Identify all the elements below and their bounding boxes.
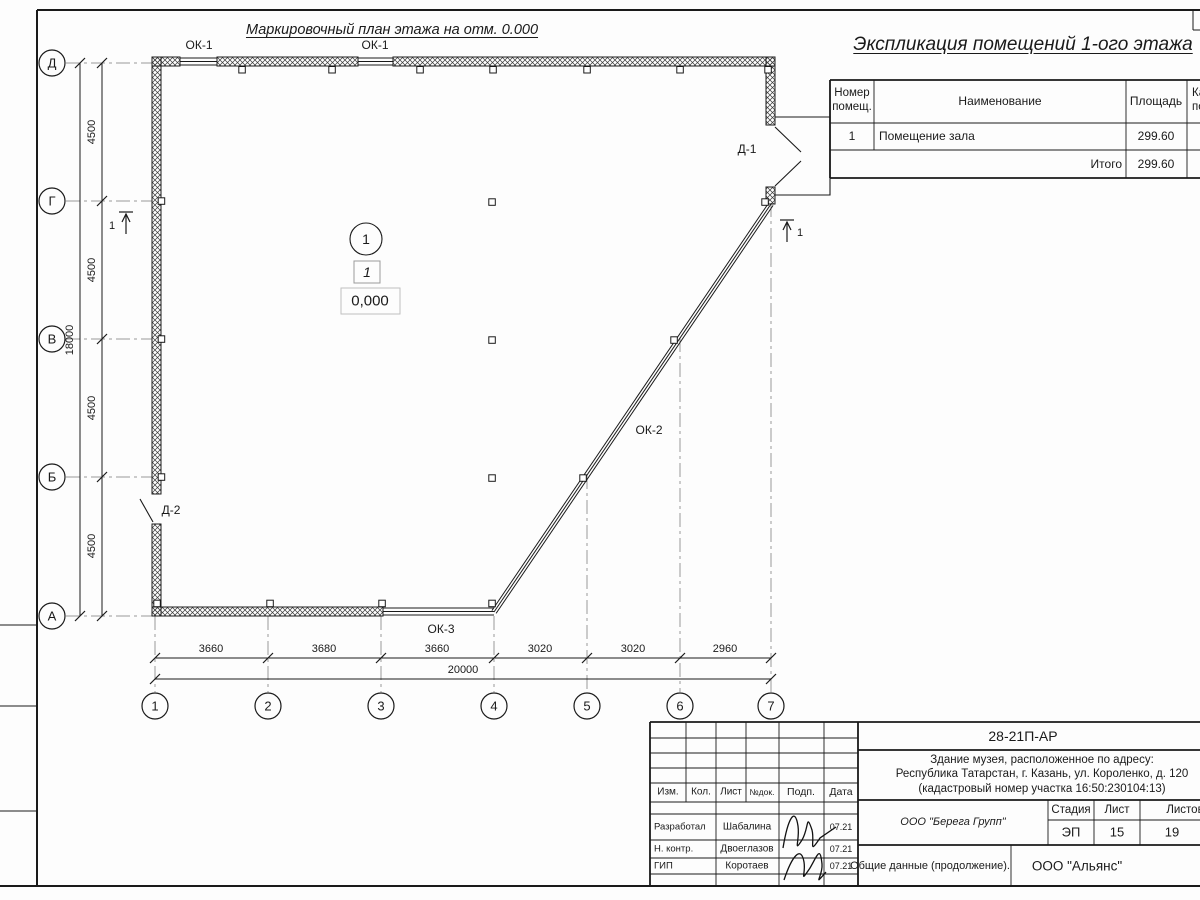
staff-date-gip: 07.21 [830,861,853,871]
axis-grid-lines [66,63,771,692]
windows [180,58,773,615]
explication-col-area: Площадь [1130,94,1182,108]
staff-name-ncontrol: Двоеглазов [720,844,773,855]
dim-left-2: 4500 [86,258,98,282]
col-list: Лист [720,787,742,798]
room-number-label: 1 [363,264,371,280]
staff-name-developer: Шабалина [723,822,771,833]
col-ndoc: №док. [750,787,775,797]
room-elevation-label: 0,000 [351,293,389,310]
signature-scribbles [783,816,836,880]
section-label-right: 1 [797,227,803,239]
section-label-left: 1 [109,220,115,232]
explication-row-name: Помещение зала [879,129,975,143]
staff-role-ncontrol: Н. контр. [654,844,693,855]
plan-title: Маркировочный план этажа на отм. 0.000 [246,22,538,38]
dim-left-1: 4500 [86,120,98,144]
drawing-sheet: Маркировочный план этажа на отм. 0.000 О… [0,0,1200,900]
window-label-ok3: ОК-3 [428,622,455,636]
room-axis-circle-label: 1 [362,231,370,247]
door-d2 [140,499,153,522]
doc-code: 28-21П-АР [988,728,1057,744]
contractor: ООО "Альянс" [1032,859,1122,874]
sheet-value: 15 [1110,825,1124,840]
sheets-value: 19 [1165,825,1179,840]
doc-title: Общие данные (продолжение). [850,860,1010,872]
explication-col-cat: Кат. пом. [1192,87,1200,115]
axis-col-1: 1 [151,699,158,714]
axis-col-4: 4 [490,699,497,714]
dim-bottom-5: 3020 [621,643,645,655]
dim-left-total: 18000 [64,325,76,356]
col-kol: Кол. [691,787,711,798]
staff-role-gip: ГИП [654,861,673,872]
col-data: Дата [829,786,852,798]
axis-row-a: А [48,609,57,624]
axis-row-b: Б [48,470,57,485]
staff-date-developer: 07.21 [830,822,853,832]
fold-marks [0,10,1200,811]
dim-bottom-2: 3680 [312,643,336,655]
object-line-3: (кадастровый номер участка 16:50:230104:… [918,783,1165,795]
axis-row-v: В [48,332,57,347]
explication-row-area: 299.60 [1138,129,1175,143]
door-d1 [775,117,830,195]
section-marks [119,212,794,242]
dim-bottom-1: 3660 [199,643,223,655]
object-line-2: Республика Татарстан, г. Казань, ул. Кор… [896,768,1189,780]
axis-col-2: 2 [264,699,271,714]
dimension-ticks [75,58,776,684]
axis-col-3: 3 [377,699,384,714]
dim-bottom-6: 2960 [713,643,737,655]
axis-col-5: 5 [583,699,590,714]
dim-bottom-4: 3020 [528,643,552,655]
window-label-ok2: ОК-2 [636,423,663,437]
door-label-d1: Д-1 [738,142,757,156]
stage-label: Стадия [1051,804,1090,816]
dim-left-3: 4500 [86,396,98,420]
explication-col-name: Наименование [958,94,1041,108]
explication-total-area: 299.60 [1138,157,1175,171]
explication-col-num: Номер помещ. [832,87,872,115]
axis-row-d: Д [48,56,57,71]
explication-row-num: 1 [849,129,856,143]
axis-col-7: 7 [767,699,774,714]
sheet-label: Лист [1105,804,1130,816]
dim-bottom-total: 20000 [448,664,479,676]
col-podp: Подп. [787,786,815,798]
staff-role-developer: Разработал [654,822,706,833]
window-label-ok1-a: ОК-1 [186,38,213,52]
col-izm: Изм. [657,787,678,798]
axis-row-g: Г [48,194,55,209]
dim-left-4: 4500 [86,534,98,558]
stage-value: ЭП [1062,825,1081,840]
axis-circles [39,50,784,719]
sheets-label: Листов [1166,804,1200,816]
staff-date-ncontrol: 07.21 [830,844,853,854]
columns [154,67,772,607]
staff-name-gip: Коротаев [725,861,768,872]
explication-total-label: Итого [1091,157,1122,171]
dim-bottom-3: 3660 [425,643,449,655]
door-label-d2: Д-2 [162,503,181,517]
explication-title: Экспликация помещений 1-ого этажа [853,34,1192,56]
axis-col-6: 6 [676,699,683,714]
design-company: ООО "Берега Групп" [900,816,1005,828]
dimension-lines [80,63,771,679]
object-line-1: Здание музея, расположенное по адресу: [930,754,1154,766]
window-label-ok1-b: ОК-1 [362,38,389,52]
